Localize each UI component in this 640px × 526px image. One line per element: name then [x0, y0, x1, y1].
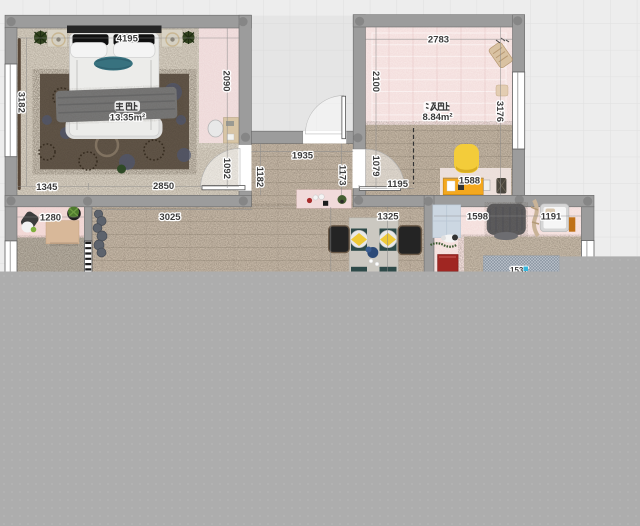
svg-text:2100: 2100: [370, 71, 381, 92]
svg-text:1280: 1280: [40, 213, 61, 224]
svg-text:3025: 3025: [159, 212, 181, 223]
svg-text:1195: 1195: [387, 179, 408, 190]
svg-text:4195: 4195: [117, 34, 139, 45]
svg-text:1173: 1173: [337, 165, 348, 186]
svg-text:1079: 1079: [370, 155, 381, 176]
svg-text:1182: 1182: [254, 167, 265, 188]
svg-text:1588: 1588: [459, 176, 480, 187]
svg-text:1191: 1191: [541, 212, 562, 223]
svg-text:2850: 2850: [153, 181, 174, 192]
svg-text:3182: 3182: [16, 92, 27, 113]
svg-text:13.35m²: 13.35m²: [110, 113, 145, 124]
svg-text:3176: 3176: [494, 101, 505, 122]
svg-text:1092: 1092: [221, 158, 232, 179]
svg-text:8.84m²: 8.84m²: [422, 112, 452, 123]
svg-text:2090: 2090: [221, 70, 232, 91]
svg-text:2783: 2783: [428, 35, 449, 46]
svg-text:1935: 1935: [292, 151, 314, 162]
svg-text:1325: 1325: [377, 211, 399, 222]
svg-text:1598: 1598: [467, 212, 488, 223]
svg-text:1345: 1345: [36, 182, 58, 193]
